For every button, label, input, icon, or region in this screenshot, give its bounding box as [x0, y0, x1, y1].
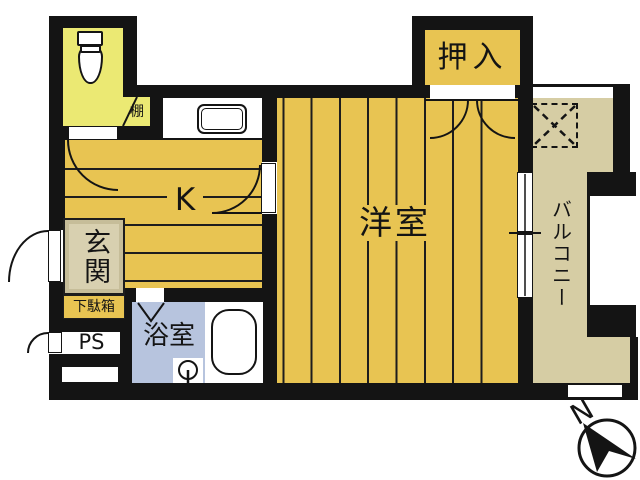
bath-door-opening [136, 288, 164, 302]
pipe-space-label: PS [63, 331, 120, 354]
bath-drain [178, 360, 198, 380]
window-crossbar [517, 231, 533, 235]
compass-needle [583, 423, 636, 472]
sink-inner [201, 108, 243, 130]
wall-balcony-edge [587, 196, 590, 305]
wall-balcony-stub1 [587, 172, 636, 196]
balcony-floor-lower [533, 337, 630, 383]
window-balcony [517, 172, 533, 298]
washer-space [531, 103, 578, 148]
shoe-cabinet-label: 下駄箱 [63, 296, 125, 318]
entrance-label: 玄関 [76, 226, 112, 288]
toilet-seat-hinge [80, 45, 101, 53]
compass-circle [579, 420, 635, 476]
closet-door-opening [430, 85, 515, 100]
wall-balcony-stub2 [587, 305, 636, 337]
balcony-bottom-gap [568, 385, 622, 397]
shelf-label: 棚 [125, 100, 149, 124]
meter-box [62, 367, 118, 382]
kitchen-door-leaf [261, 163, 276, 213]
bathroom-label: 浴室 [133, 322, 205, 352]
bathtub [211, 309, 257, 375]
entry-door-arc [9, 231, 48, 282]
ps-door-leaf [48, 332, 62, 353]
toilet-door-opening [68, 126, 118, 140]
western-room-label: 洋室 [345, 205, 445, 241]
kitchen-label: K [167, 184, 203, 216]
compass: N [565, 393, 636, 476]
balcony-label: バルコニー [537, 168, 583, 340]
entry-door-leaf [48, 230, 61, 282]
closet-label: 押入 [425, 38, 520, 78]
floor-plan: 棚 押入 K 洋室 玄関 下駄箱 PS 浴室 バルコニー [0, 0, 640, 480]
ps-door-arc [28, 333, 48, 353]
